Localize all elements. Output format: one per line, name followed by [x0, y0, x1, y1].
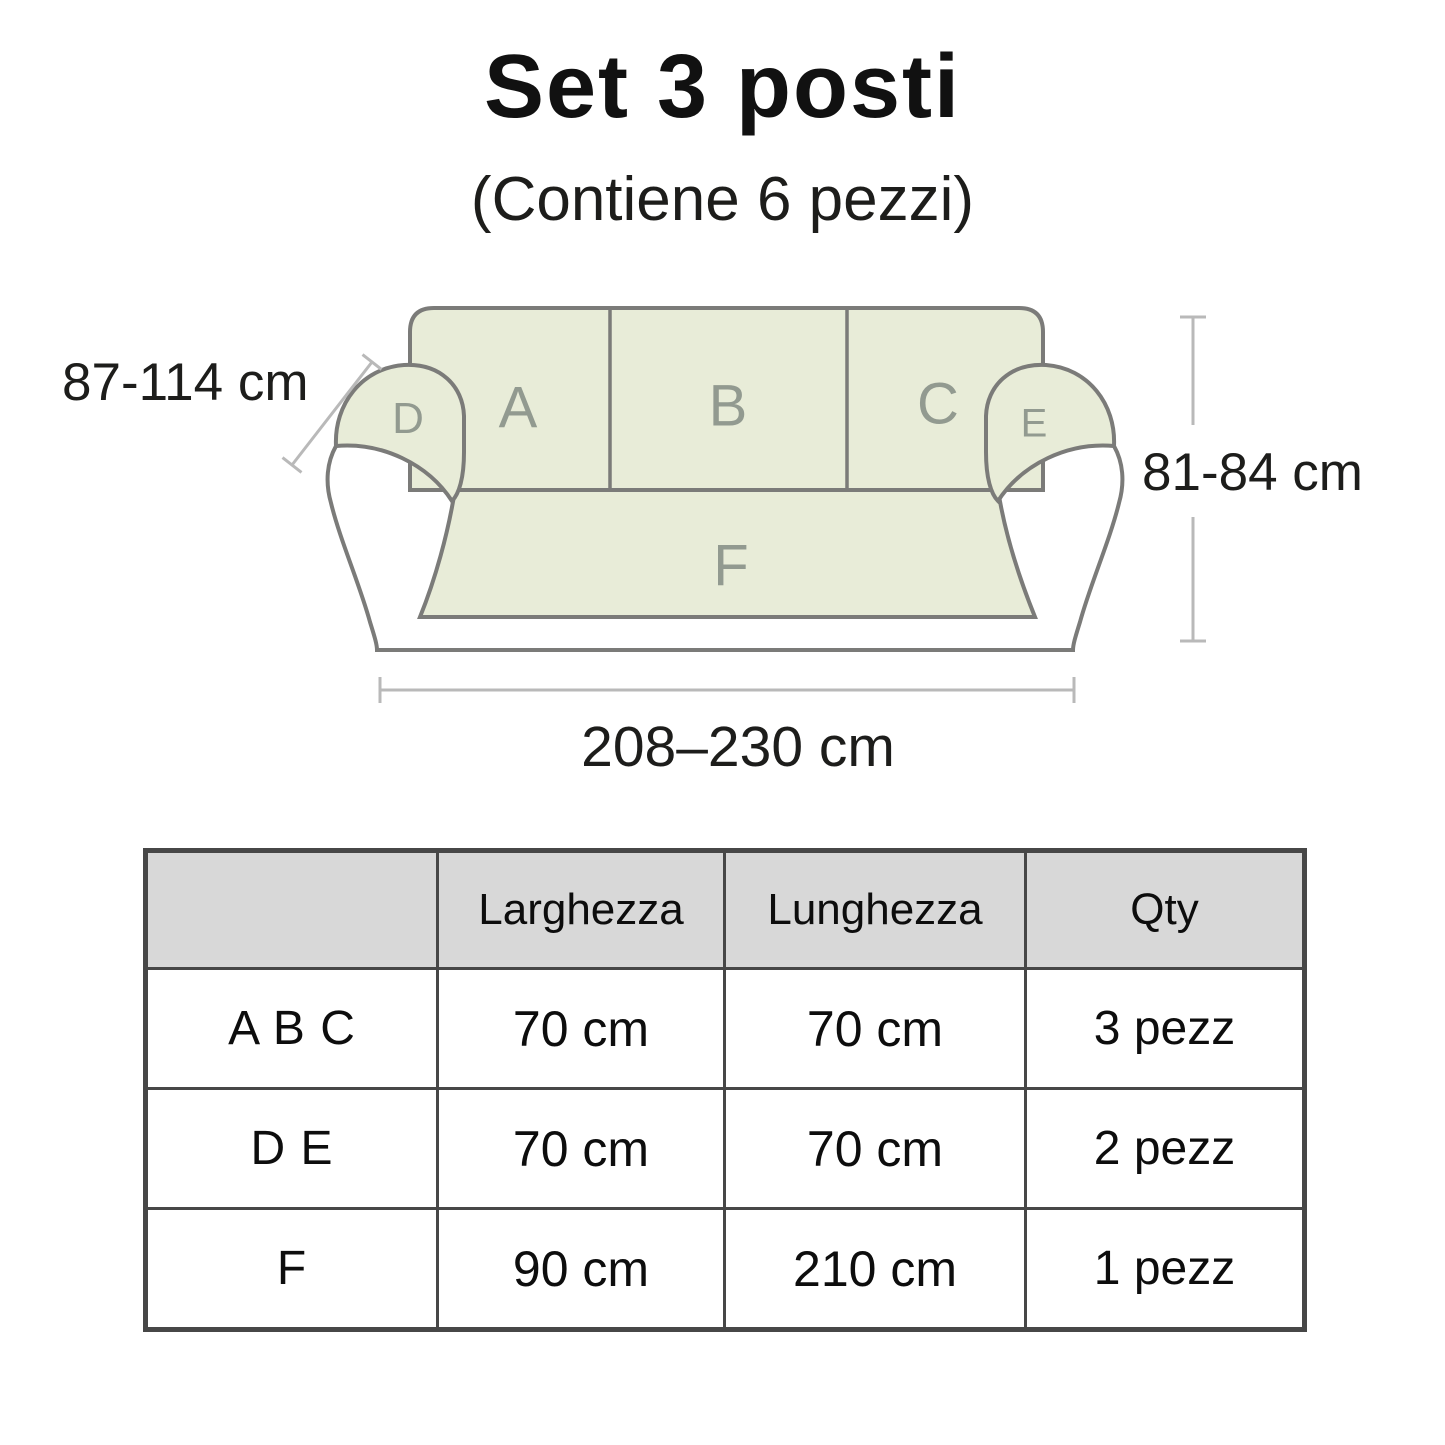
dim-arm-depth: 87-114 cm: [62, 352, 308, 413]
header-cell-larghezza: Larghezza: [438, 851, 725, 969]
section-label-b: B: [709, 373, 748, 440]
table-row: F 90 cm 210 cm 1 pezz: [146, 1209, 1305, 1330]
header-cell-lunghezza: Lunghezza: [725, 851, 1026, 969]
section-label-c: C: [917, 371, 959, 438]
cell-part: D E: [146, 1089, 438, 1209]
product-dimension-page: Set 3 posti (Contiene 6 pezzi): [0, 0, 1445, 1445]
cell-part: A B C: [146, 969, 438, 1089]
cell-lunghezza: 210 cm: [725, 1209, 1026, 1330]
cell-qty: 2 pezz: [1026, 1089, 1305, 1209]
dim-height: 81-84 cm: [1142, 442, 1363, 503]
cell-larghezza: 90 cm: [438, 1209, 725, 1330]
table-row: D E 70 cm 70 cm 2 pezz: [146, 1089, 1305, 1209]
cell-larghezza: 70 cm: [438, 969, 725, 1089]
cell-qty: 3 pezz: [1026, 969, 1305, 1089]
section-label-e: E: [1021, 402, 1048, 447]
header-cell-qty: Qty: [1026, 851, 1305, 969]
cell-qty: 1 pezz: [1026, 1209, 1305, 1330]
width-measure-line: [380, 677, 1074, 703]
table-header-row: Larghezza Lunghezza Qty: [146, 851, 1305, 969]
section-label-a: A: [499, 375, 538, 442]
size-spec-table: Larghezza Lunghezza Qty A B C 70 cm 70 c…: [143, 848, 1307, 1332]
cell-part: F: [146, 1209, 438, 1330]
header-cell-part: [146, 851, 438, 969]
section-label-d: D: [392, 394, 424, 444]
sofa-dimension-diagram: A B C D E F 87-114 cm 81-84 cm 208–230 c…: [0, 0, 1445, 820]
section-label-f: F: [713, 533, 748, 600]
cell-lunghezza: 70 cm: [725, 969, 1026, 1089]
table-row: A B C 70 cm 70 cm 3 pezz: [146, 969, 1305, 1089]
cell-lunghezza: 70 cm: [725, 1089, 1026, 1209]
cell-larghezza: 70 cm: [438, 1089, 725, 1209]
dim-width: 208–230 cm: [581, 714, 895, 780]
